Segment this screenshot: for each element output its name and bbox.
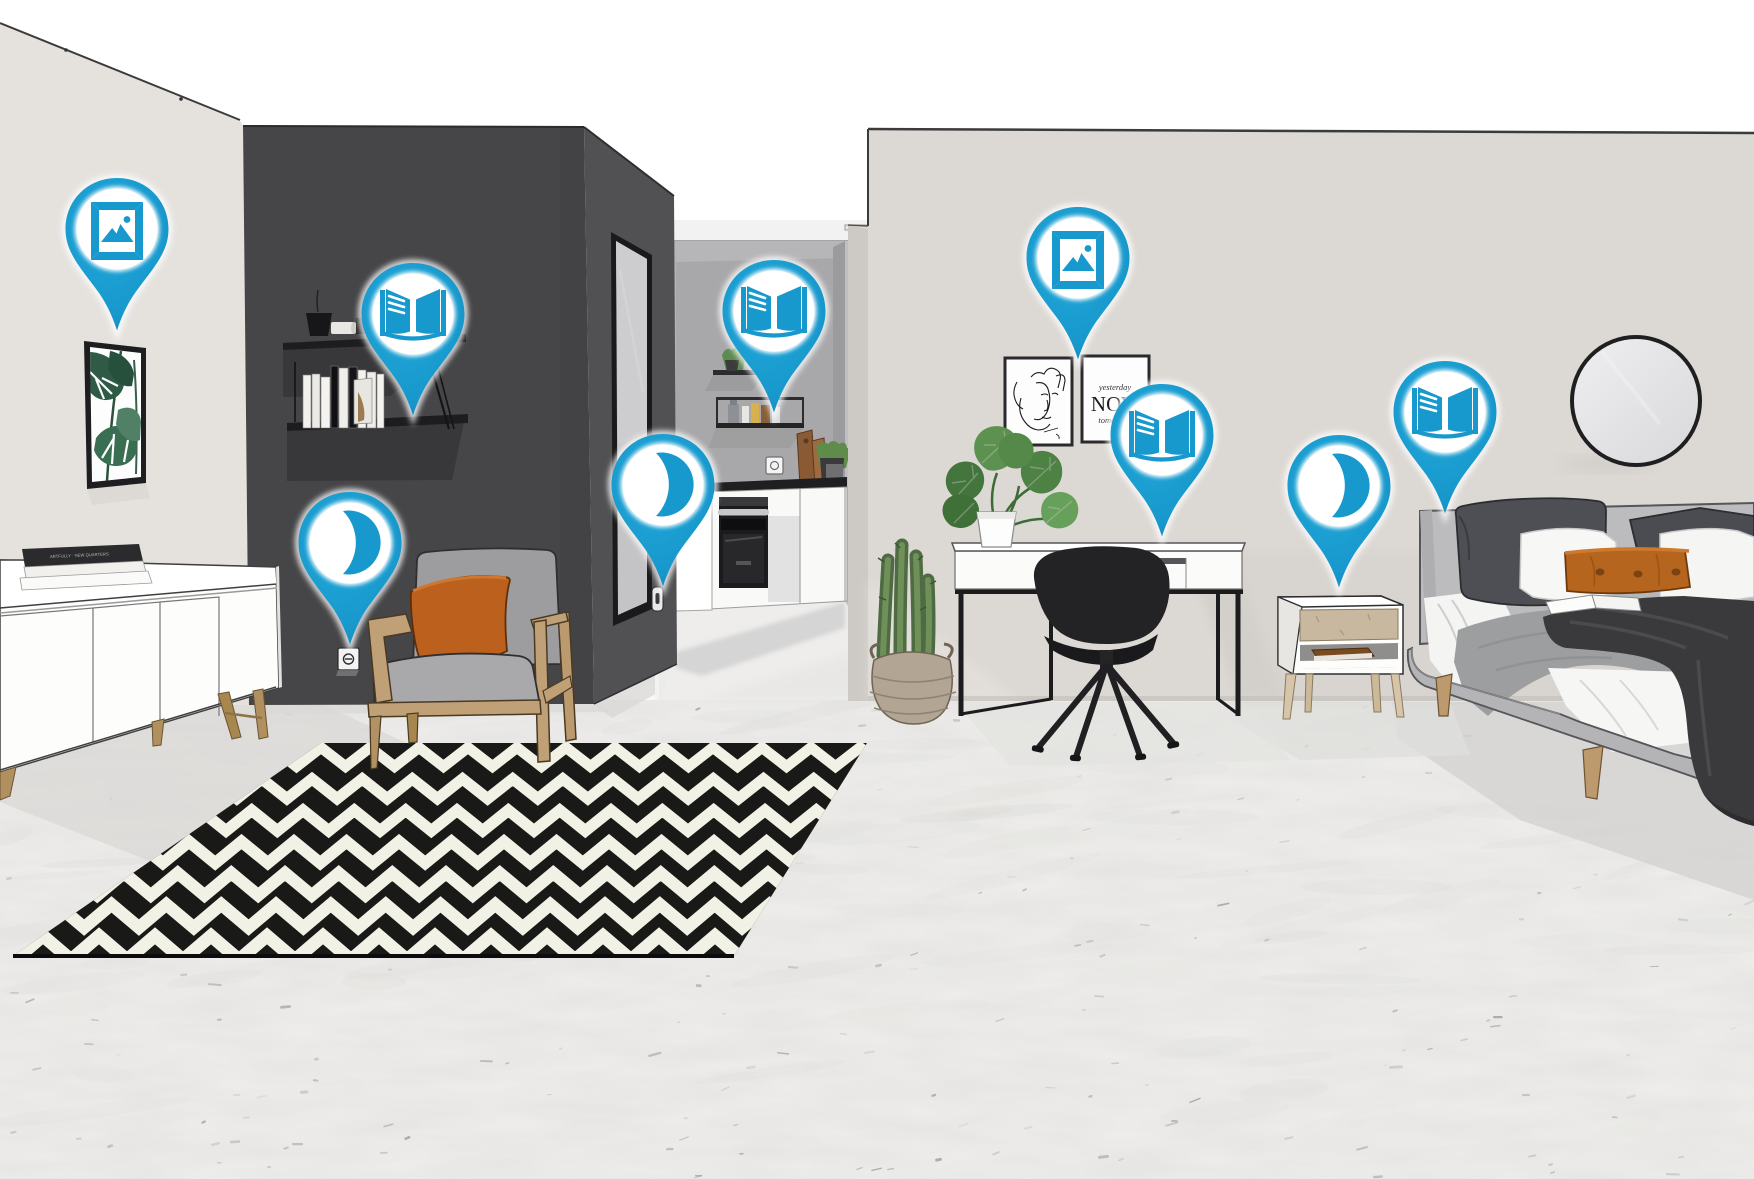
svg-text:yesterday: yesterday bbox=[1098, 382, 1131, 392]
